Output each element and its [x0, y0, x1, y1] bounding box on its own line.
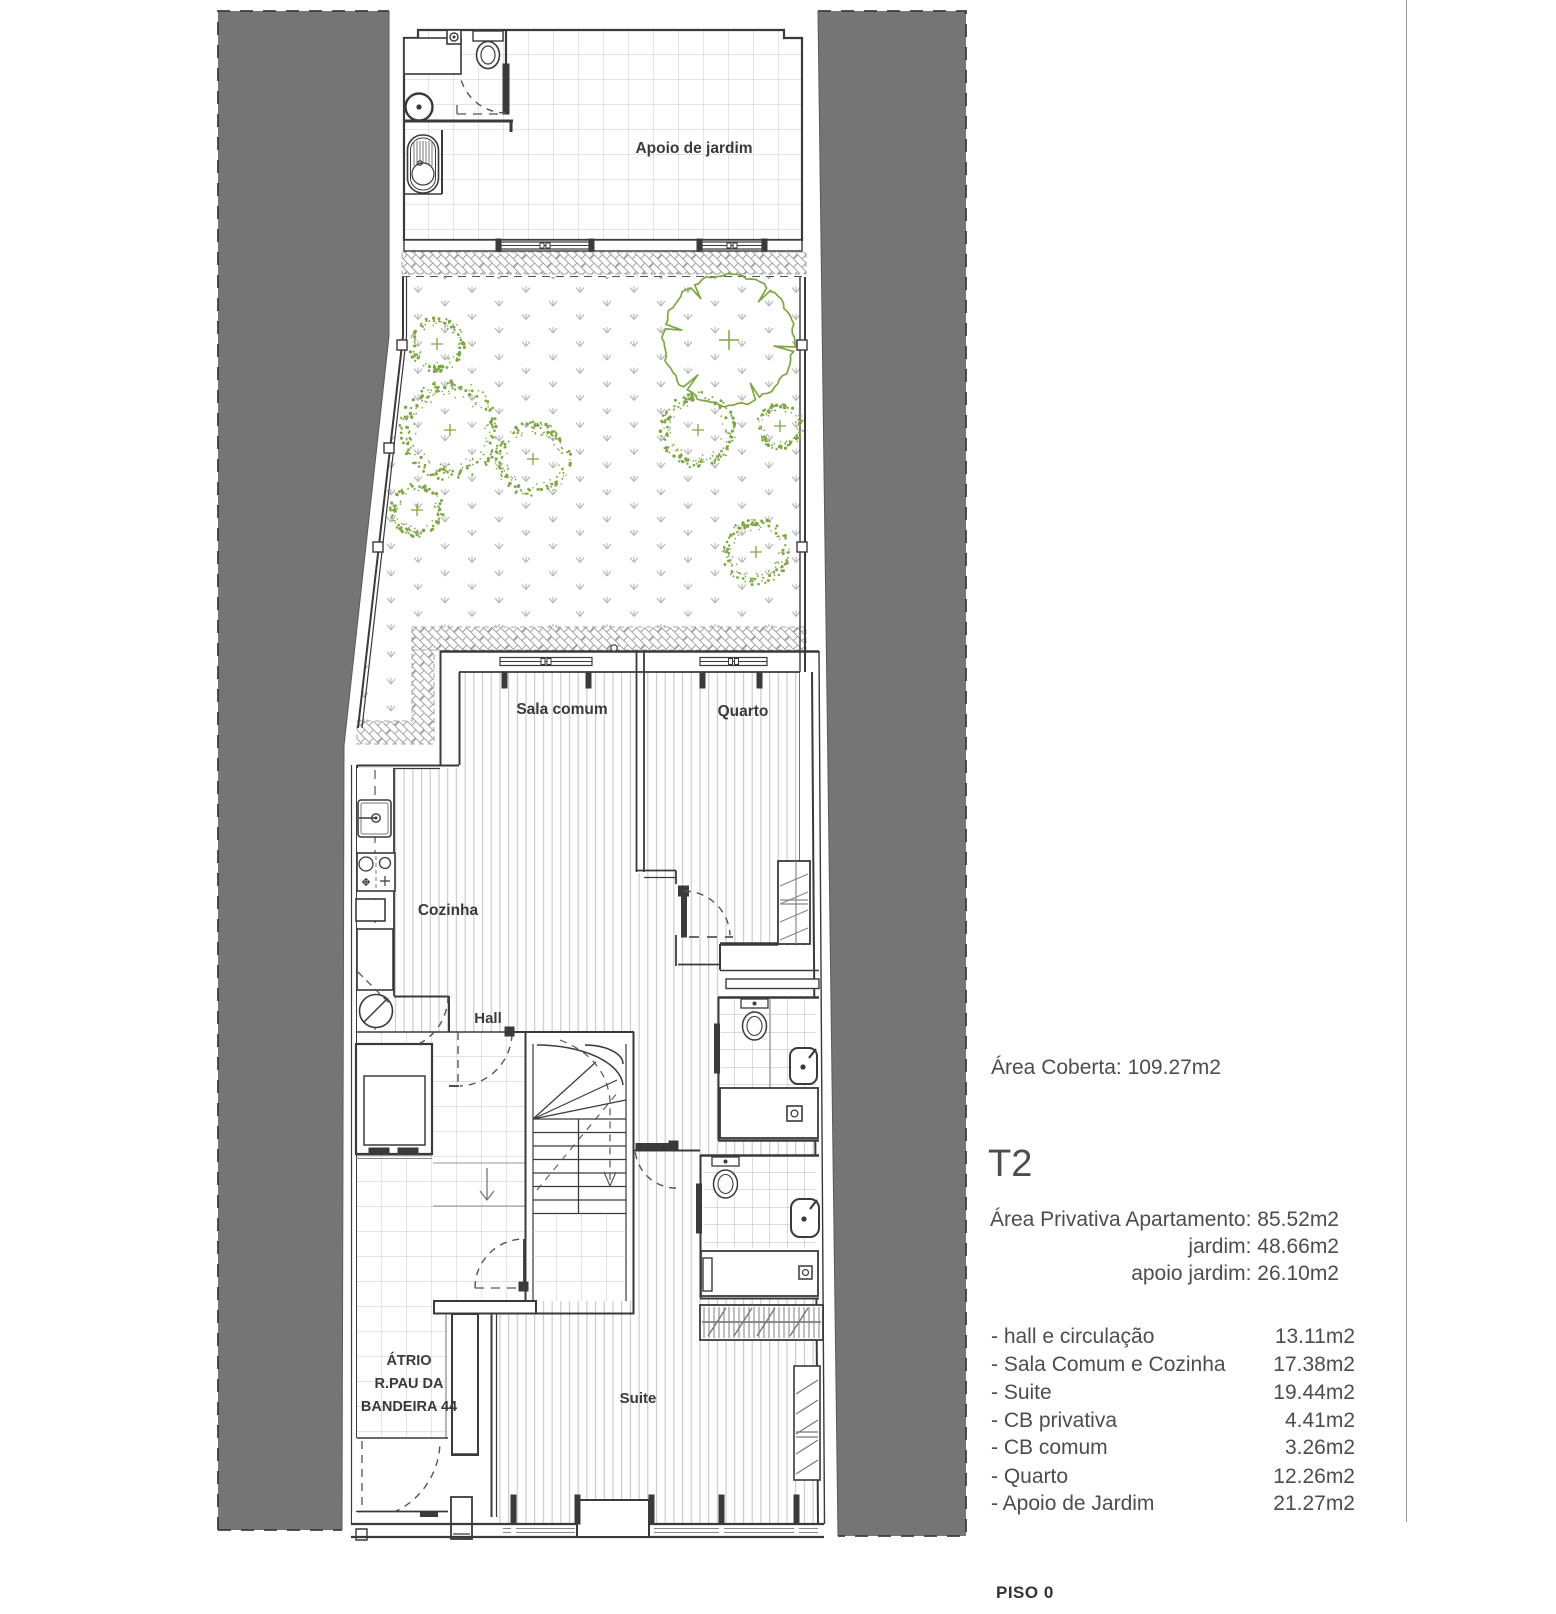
svg-text:- Apoio de Jardim: - Apoio de Jardim — [991, 1492, 1154, 1515]
svg-text:- Suite: - Suite — [991, 1381, 1052, 1404]
svg-text:17.38m2: 17.38m2 — [1273, 1353, 1355, 1376]
svg-text:PISO 0: PISO 0 — [996, 1583, 1054, 1602]
svg-text:Sala comum: Sala comum — [516, 701, 607, 718]
svg-text:Suite: Suite — [620, 1390, 657, 1407]
svg-text:3.26m2: 3.26m2 — [1285, 1436, 1355, 1459]
svg-text:13.11m2: 13.11m2 — [1275, 1325, 1355, 1348]
svg-text:4.41m2: 4.41m2 — [1285, 1409, 1355, 1432]
svg-text:- Quarto: - Quarto — [991, 1465, 1068, 1488]
svg-text:ÁTRIO: ÁTRIO — [386, 1352, 431, 1369]
svg-text:R.PAU DA: R.PAU DA — [374, 1376, 444, 1392]
svg-text:- hall e circulação: - hall e circulação — [991, 1325, 1154, 1348]
svg-text:- CB privativa: - CB privativa — [991, 1409, 1117, 1432]
svg-text:21.27m2: 21.27m2 — [1273, 1492, 1355, 1515]
svg-text:apoio jardim: 26.10m2: apoio jardim: 26.10m2 — [1131, 1262, 1339, 1285]
svg-text:Hall: Hall — [474, 1010, 502, 1027]
svg-text:Área Privativa Apartamento: 85: Área Privativa Apartamento: 85.52m2 — [990, 1208, 1339, 1231]
svg-text:Área Coberta: 109.27m2: Área Coberta: 109.27m2 — [991, 1056, 1221, 1079]
svg-text:jardim: 48.66m2: jardim: 48.66m2 — [1187, 1235, 1339, 1258]
svg-text:T2: T2 — [988, 1143, 1032, 1185]
svg-text:Cozinha: Cozinha — [418, 902, 479, 919]
svg-text:- Sala Comum e Cozinha: - Sala Comum e Cozinha — [991, 1353, 1226, 1376]
svg-text:12.26m2: 12.26m2 — [1273, 1465, 1355, 1488]
svg-text:Apoio de jardim: Apoio de jardim — [635, 140, 752, 157]
svg-text:Quarto: Quarto — [718, 703, 769, 720]
svg-text:- CB comum: - CB comum — [991, 1436, 1108, 1459]
svg-text:BANDEIRA 44: BANDEIRA 44 — [361, 1399, 457, 1415]
svg-text:19.44m2: 19.44m2 — [1273, 1381, 1355, 1404]
